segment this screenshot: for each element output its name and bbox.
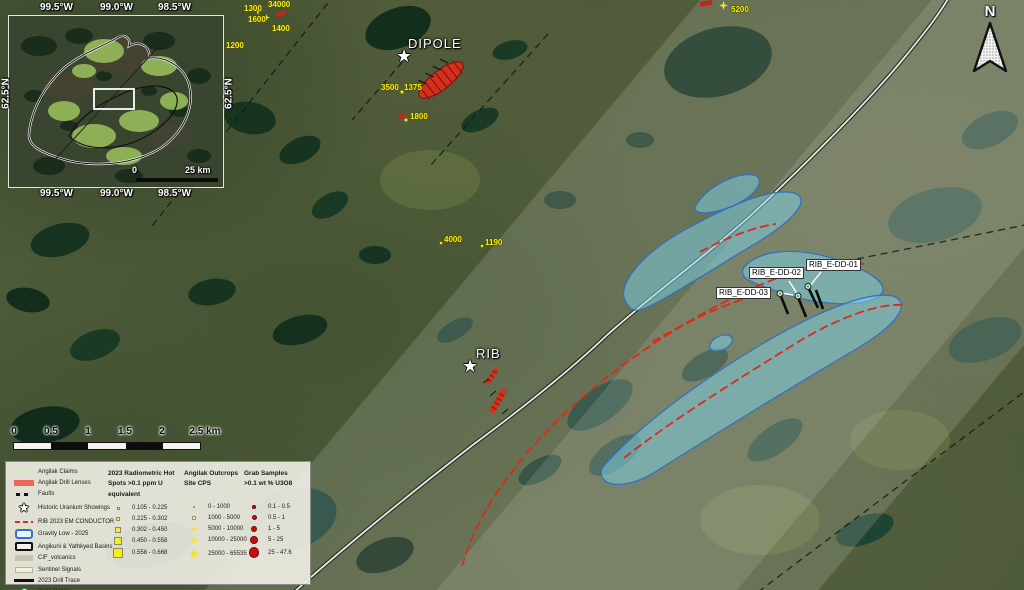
spot-label: 1300 <box>244 5 262 13</box>
inset-scalebar <box>136 178 218 182</box>
legend-class: 5000 - 10000 <box>184 525 240 533</box>
dipole-target-label: DIPOLE <box>408 37 462 50</box>
radiometric-swatch <box>113 548 123 558</box>
grab-swatch <box>250 536 259 545</box>
scalebar <box>13 442 201 450</box>
drillhole-label-dd02: RIB_E-DD-02 <box>749 267 804 279</box>
fault-swatch <box>16 493 32 496</box>
gravity-low-swatch <box>15 529 33 539</box>
outcrops-header: Angilak Outcrops Site CPS <box>184 469 240 490</box>
legend-class: 25000 - 65535 <box>184 548 240 560</box>
inset-lon-label: 99.5°W <box>40 2 73 13</box>
dipole-hot-zone <box>409 50 468 104</box>
radiometric-swatch <box>116 517 121 522</box>
inset-lon-label: 99.5°W <box>40 188 73 199</box>
outcrop-star-swatch <box>188 548 200 560</box>
legend-class: 0.5 - 1 <box>244 514 308 522</box>
legend-item: CIF_volcanics <box>14 554 108 562</box>
inset-graphics <box>9 16 223 187</box>
legend-class: 0 - 1000 <box>184 503 240 511</box>
outcrop-swatch <box>192 516 196 520</box>
north-arrow: N <box>966 3 1014 81</box>
radiometric-swatch <box>115 527 121 533</box>
outcrop-swatch <box>193 506 195 508</box>
legend-class: 1000 - 5000 <box>184 514 240 522</box>
spot-label: 1800 <box>410 113 428 121</box>
spot-label: 1400 <box>272 25 290 33</box>
radiometric-header: 2023 Radiometric Hot Spots >0.1 ppm U eq… <box>108 469 182 500</box>
legend-class: 5 - 25 <box>244 536 308 545</box>
legend-class: 1 - 5 <box>244 525 308 533</box>
scalebar-tick: 1 <box>85 426 91 437</box>
grab-swatch <box>249 547 260 558</box>
grab-swatch <box>251 526 258 533</box>
legend-class: 0.105 - 0.225 <box>108 504 182 512</box>
inset-lat-label-right: 62.5°N <box>224 74 235 114</box>
legend-item: 2023 Drill Trace <box>14 577 108 585</box>
legend-grabs-column: Grab Samples >0.1 wt % U3O8 0.1 - 0.5 0.… <box>244 469 308 558</box>
drillhole-label-dd03: RIB_E-DD-03 <box>716 287 771 299</box>
legend-item: RIB 2023 EM CONDUCTOR <box>14 518 108 526</box>
legend-item: Angilak Drill Lenses <box>14 479 108 487</box>
legend-item: Gravity Low - 2025 <box>14 529 108 539</box>
rib-target-label: RIB <box>476 347 501 360</box>
historic-showing-star-icon: ★ <box>18 502 30 514</box>
scalebar-tick: 2 <box>159 426 165 437</box>
scalebar-tick: 1.5 <box>118 426 132 437</box>
legend-class: 10000 - 25000 <box>184 536 240 545</box>
legend-class: 0.1 - 0.5 <box>244 503 308 511</box>
grab-swatch <box>252 515 257 520</box>
inset-lon-label: 99.0°W <box>100 188 133 199</box>
legend-panel: Angilak Claims Angilak Drill Lenses Faul… <box>5 461 311 585</box>
grab-swatch <box>252 505 256 509</box>
spot-label: 3500 <box>381 84 399 92</box>
grabs-header: Grab Samples >0.1 wt % U3O8 <box>244 469 308 490</box>
radiometric-swatch <box>117 507 120 510</box>
north-arrow-icon <box>968 21 1012 79</box>
legend-item: Angilak Claims <box>14 468 108 476</box>
legend-symbols-column: Angilak Claims Angilak Drill Lenses Faul… <box>14 468 108 590</box>
radiometric-swatch <box>114 537 122 545</box>
spot-label: 5200 <box>731 6 749 14</box>
legend-outcrops-column: Angilak Outcrops Site CPS 0 - 1000 1000 … <box>184 469 240 560</box>
scalebar-tick: 2.5 km <box>189 426 220 437</box>
scalebar-tick: 0.5 <box>44 426 58 437</box>
volcanics-swatch <box>15 555 33 561</box>
drill-lenses-swatch <box>14 480 34 486</box>
spot-label: 1190 <box>485 239 502 247</box>
claims-swatch <box>14 469 34 475</box>
legend-item: Faults <box>14 490 108 498</box>
inset-lat-label-left: 62.5°N <box>1 74 12 114</box>
scalebar-tick: 0 <box>11 426 17 437</box>
legend-class: 0.558 - 0.668 <box>108 548 182 558</box>
em-conductor-swatch <box>15 521 33 524</box>
inset-lon-label: 99.0°W <box>100 2 133 13</box>
inset-lon-label: 98.5°W <box>158 2 191 13</box>
spot-label: 4000 <box>444 236 462 244</box>
legend-class: 0.302 - 0.450 <box>108 526 182 534</box>
spot-label: 34000 <box>268 1 290 9</box>
legend-class: 0.450 - 0.558 <box>108 537 182 545</box>
legend-class: 25 - 47.6 <box>244 547 308 558</box>
legend-class: 0.225 - 0.302 <box>108 515 182 523</box>
basins-swatch <box>15 542 33 551</box>
inset-locator-map: 0 25 km <box>8 15 224 188</box>
drill-trace-swatch <box>14 579 34 582</box>
inset-scale-max: 25 km <box>185 165 211 175</box>
inset-scale-zero: 0 <box>132 165 137 175</box>
legend-item: Angikuni & Yathkyed Basins <box>14 542 108 551</box>
north-label: N <box>966 3 1014 20</box>
drillhole-label-dd01: RIB_E-DD-01 <box>806 259 861 271</box>
legend-item: ★Historic Uranium Showings <box>14 502 108 515</box>
signals-swatch <box>15 567 33 573</box>
outcrop-star-swatch <box>191 525 198 532</box>
spot-label: 1600 <box>248 16 266 24</box>
spot-label: 1200 <box>226 42 244 50</box>
map-canvas: 1300 34000 1600 1400 1200 3500 1375 1800… <box>0 0 1024 590</box>
legend-item: Sentinel Signals <box>14 566 108 574</box>
spot-label: 1375 <box>404 84 422 92</box>
inset-lon-label: 98.5°W <box>158 188 191 199</box>
outcrop-star-swatch <box>190 536 199 545</box>
legend-radiometric-column: 2023 Radiometric Hot Spots >0.1 ppm U eq… <box>108 469 182 558</box>
